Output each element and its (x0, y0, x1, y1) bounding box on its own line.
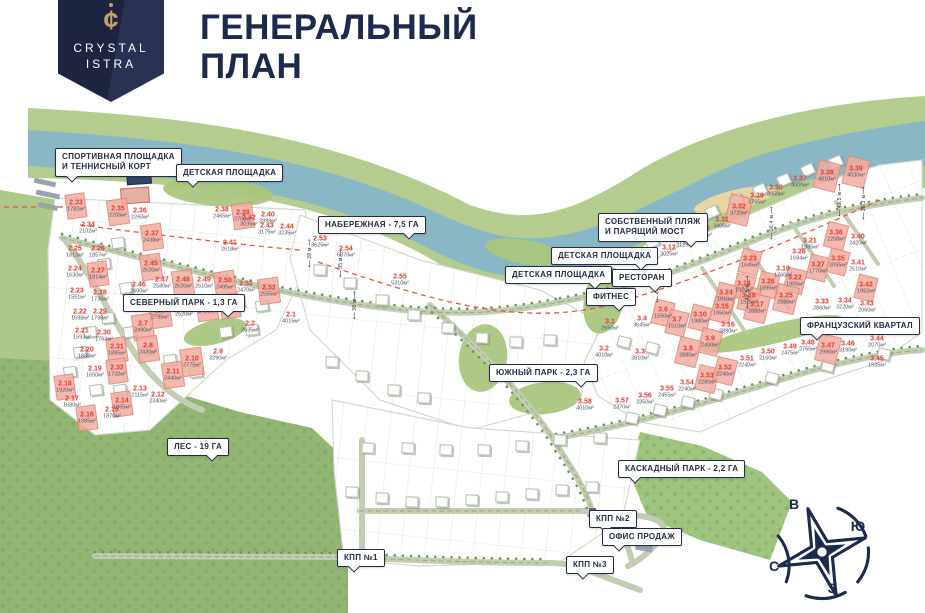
plot-area: 3765м² (748, 200, 766, 206)
plot-area: 3720м² (730, 211, 748, 217)
plot-2.33[interactable]: 2.331782м² (67, 199, 85, 212)
plot-area: 1985м² (78, 419, 96, 425)
master-plan-page: 28 м35 м38 м44,9 м42,5 м36,4 м43,5 м39,3… (0, 0, 925, 613)
plot-area: 2475м² (781, 351, 799, 357)
house-icon (593, 432, 606, 443)
plot-area: 2205м² (109, 213, 127, 219)
plot-3.52[interactable]: 3.522240м² (716, 364, 734, 377)
plot-area: 6370м² (337, 253, 355, 259)
plot-3.28[interactable]: 3.281684м² (790, 248, 808, 261)
plot-area: 2430м² (139, 350, 157, 356)
house-icon (441, 322, 454, 333)
plot-3.23[interactable]: 3.231645м² (741, 255, 759, 268)
house-icon (543, 334, 556, 345)
plot-2.34[interactable]: 2.342102м² (79, 221, 97, 234)
plot-area: 1770м² (809, 269, 827, 275)
plot-area: 1630м² (66, 273, 84, 279)
plot-area: 1736м² (91, 297, 109, 303)
plot-area: 3190м² (839, 348, 857, 354)
plot-area: 2618м² (221, 247, 239, 253)
plot-3.40[interactable]: 3.402420м² (849, 233, 867, 246)
plot-2.20[interactable]: 2.201688м² (78, 346, 96, 359)
plot-2.55[interactable]: 2.555310м² (391, 273, 409, 286)
house-icon (435, 496, 448, 507)
plot-3.26[interactable]: 3.261895м² (759, 278, 777, 291)
plot-2.16[interactable]: 2.161985м² (78, 411, 96, 424)
plot-3.10[interactable]: 3.101980м² (691, 311, 709, 324)
plot-area: 2490м² (134, 328, 152, 334)
house-icon (495, 491, 508, 502)
plot-3.17[interactable]: 3.172888м² (748, 301, 766, 314)
plot-area: 3235м² (278, 231, 296, 237)
plot-3.48[interactable]: 3.482765м² (799, 339, 817, 352)
plot-3.56[interactable]: 3.562350м² (636, 392, 654, 405)
plot-2.53[interactable]: 2.533625м² (311, 235, 329, 248)
plot-area: 1510м² (668, 324, 686, 330)
callout-ресторан: РЕСТОРАН (612, 269, 672, 287)
plot-2.25[interactable]: 2.251613м² (66, 245, 84, 258)
plot-2.23[interactable]: 2.231551м² (68, 287, 86, 300)
house-icon (509, 336, 522, 347)
callout-кпп: КПП №2 (589, 510, 637, 528)
plot-area: 2370м² (613, 405, 631, 411)
plot-area: 3175м² (258, 230, 276, 236)
plot-2.47[interactable]: 2.472580м² (153, 276, 171, 289)
plot-2.50[interactable]: 2.502495м² (216, 277, 234, 290)
plot-area: 4010м² (818, 177, 836, 183)
house-icon (465, 494, 478, 505)
plot-area: 2990м² (819, 350, 837, 356)
plot-area: 2240м² (678, 387, 696, 393)
plot-area: 1980м² (691, 319, 709, 325)
plot-2.32[interactable]: 2.321732м² (108, 364, 126, 377)
plot-area: 2208м² (827, 237, 845, 243)
house-icon (475, 332, 488, 343)
plot-area: 1950м² (713, 311, 731, 317)
plot-2.7[interactable]: 2.72490м² (134, 320, 152, 333)
plot-2.44[interactable]: 2.443235м² (278, 223, 296, 236)
plot-area: 1551м² (68, 295, 86, 301)
plot-area: 1684м² (790, 256, 808, 262)
plot-area: 2280м² (698, 380, 716, 386)
plot-3.9[interactable]: 3.92400м² (701, 335, 719, 348)
plot-3.27[interactable]: 3.271770м² (809, 261, 827, 274)
plot-3.42[interactable]: 3.421952м² (857, 281, 875, 294)
plot-3.34[interactable]: 3.343220м² (836, 297, 854, 310)
plot-area: 2888м² (748, 309, 766, 315)
callout-фитнес: ФИТНЕС (586, 288, 636, 306)
plot-area: 2520м² (142, 268, 160, 274)
house-icon (525, 488, 538, 499)
dimension-label: 38 м (352, 291, 358, 320)
plot-2.52[interactable]: 2.522555м² (260, 284, 278, 297)
plot-3.47[interactable]: 3.472990м² (819, 342, 837, 355)
plot-2.9[interactable]: 2.93290м² (209, 348, 227, 361)
dimension-label: 39,3 м (861, 186, 867, 219)
plot-area: 5310м² (391, 281, 409, 287)
plot-area: 2880м² (719, 329, 737, 335)
plot-area: 1798м² (91, 316, 109, 322)
plot-area: 2765м² (799, 347, 817, 353)
plot-3.41[interactable]: 3.412510м² (849, 259, 867, 272)
plot-2.28[interactable]: 2.281736м² (91, 289, 109, 302)
plot-area: 2775м² (183, 363, 201, 369)
plot-2.51[interactable]: 2.512470м² (237, 280, 255, 293)
house-icon (417, 392, 430, 403)
plot-area: 1885м² (108, 351, 126, 357)
plot-2.43[interactable]: 2.433175м² (258, 222, 276, 235)
plot-area: 3645м² (633, 323, 651, 329)
plot-area: 2260м² (131, 215, 149, 221)
house-icon (407, 309, 420, 320)
plot-3.2[interactable]: 3.24010м² (595, 345, 613, 358)
plot-area: 2635м² (241, 328, 259, 334)
plot-3.8[interactable]: 3.82880м² (679, 345, 697, 358)
plot-3.1[interactable]: 3.12650м² (601, 318, 619, 331)
house-icon (375, 294, 388, 305)
house-icon (401, 442, 414, 453)
plot-3.58[interactable]: 3.584010м² (576, 398, 594, 411)
plot-area: 1920м² (56, 388, 74, 394)
plot-2.27[interactable]: 2.271914м² (89, 267, 107, 280)
plot-3.43[interactable]: 3.432060м² (858, 300, 876, 313)
plot-area: 1610м² (717, 297, 735, 303)
plot-area: 3850м² (767, 192, 785, 198)
plot-2.22[interactable]: 2.221698м² (71, 308, 89, 321)
plot-2.31[interactable]: 2.311885м² (108, 343, 126, 356)
plot-3.39[interactable]: 3.394030м² (847, 165, 865, 178)
plot-3.37[interactable]: 3.374000м² (791, 175, 809, 188)
house-icon (219, 326, 233, 339)
plot-area: 3810м² (631, 356, 649, 362)
plot-3.51[interactable]: 3.512240м² (738, 355, 756, 368)
plot-2.18[interactable]: 2.181920м² (56, 380, 74, 393)
plot-area: 2420м² (849, 241, 867, 247)
plot-area: 2440м² (164, 376, 182, 382)
plot-2.17[interactable]: 2.171680м² (63, 395, 81, 408)
plot-area: 1857м² (89, 253, 107, 259)
plot-area: 4015м² (282, 319, 300, 325)
dimension-label: 36,4 м (769, 206, 775, 239)
plot-area: 2438м² (143, 238, 161, 244)
plot-area: 4030м² (847, 173, 865, 179)
callout-детская: ДЕТСКАЯ ПЛОЩАДКА (176, 164, 283, 182)
plot-area: 2055м² (829, 263, 847, 269)
plot-3.22[interactable]: 3.221905м² (786, 274, 804, 287)
plot-area: 2795м² (151, 315, 169, 321)
plot-area: 1613м² (66, 253, 84, 259)
house-icon (585, 481, 598, 492)
callout-детская: ДЕТСКАЯ ПЛОЩАДКА (505, 266, 612, 284)
plot-area: 2115м² (131, 393, 148, 399)
plot-3.16[interactable]: 3.162880м² (719, 321, 737, 334)
plot-area: 2860м² (813, 306, 831, 312)
plot-2.8[interactable]: 2.82430м² (139, 342, 157, 355)
brand-line1: CRYSTAL (58, 40, 164, 56)
plot-2.29[interactable]: 2.291798м² (91, 308, 109, 321)
house-icon (553, 434, 566, 445)
plot-area: 3035м² (240, 222, 258, 228)
plot-2.21[interactable]: 2.211593м² (73, 327, 91, 340)
house-icon (477, 444, 490, 455)
plot-2.45[interactable]: 2.452520м² (142, 260, 160, 273)
plot-2.42[interactable]: 2.423035м² (240, 214, 258, 227)
plot-area: 4000м² (791, 183, 809, 189)
plot-3.31[interactable]: 3.313405м² (713, 216, 731, 229)
brand-line2: ISTRA (58, 56, 164, 72)
plot-area: 1914м² (89, 275, 107, 281)
plot-2.24[interactable]: 2.241630м² (66, 265, 84, 278)
dimension-label: 43,5 м (837, 183, 843, 216)
plot-2.26[interactable]: 2.261857м² (89, 245, 107, 258)
plot-area: 1952м² (857, 289, 875, 295)
plot-3.45[interactable]: 3.451935м² (868, 355, 886, 368)
house-icon (345, 486, 358, 497)
plot-2.46[interactable]: 2.462600м² (130, 281, 148, 294)
house-icon (555, 484, 568, 495)
plot-area: 2580м² (153, 284, 171, 290)
plot-3.36[interactable]: 3.362208м² (827, 229, 845, 242)
plot-area: 2400м² (701, 343, 719, 349)
plot-area: 2510м² (195, 284, 213, 290)
plot-3.50[interactable]: 3.502160м² (759, 348, 777, 361)
callout-каскадный: КАСКАДНЫЙ ПАРК - 2,2 ГА (618, 460, 745, 478)
plot-3.38[interactable]: 3.384010м² (818, 169, 836, 182)
house-icon (375, 492, 388, 503)
callout-северный: СЕВЕРНЫЙ ПАРК - 1,3 ГА (123, 294, 245, 312)
plot-area: 2510м² (849, 267, 867, 273)
plot-2.49[interactable]: 2.492510м² (195, 276, 213, 289)
plot-3.49[interactable]: 3.492475м² (781, 343, 799, 356)
crystal-istra-logo-icon: ¢ (58, 0, 164, 40)
plot-area: 1645м² (741, 263, 759, 269)
plot-area: 1688м² (78, 354, 96, 360)
plot-area: 3405м² (713, 224, 731, 230)
plot-3.25[interactable]: 3.252888м² (777, 292, 795, 305)
plot-2.12[interactable]: 2.122340м² (149, 391, 167, 404)
plot-area: 2465м² (213, 214, 231, 220)
plot-2.1[interactable]: 2.14015м² (282, 311, 300, 324)
plot-area: 2470м² (237, 288, 255, 294)
plot-3.3[interactable]: 3.33810м² (631, 348, 649, 361)
plot-area: 2240м² (738, 363, 756, 369)
plot-area: 1593м² (73, 335, 91, 341)
plot-area: 2350м² (636, 400, 654, 406)
plot-3.44[interactable]: 3.442070м² (868, 335, 886, 348)
callout-набережная: НАБЕРЕЖНАЯ - 7,5 ГА (318, 216, 426, 234)
plot-area: 2520м² (174, 284, 192, 290)
plot-area: 1680м² (63, 403, 81, 409)
plot-2.30[interactable]: 2.301763м² (95, 329, 113, 342)
plot-area: 1763м² (95, 337, 113, 343)
plot-area: 4010м² (576, 406, 594, 412)
plot-3.54[interactable]: 3.542240м² (678, 379, 696, 392)
house-icon (111, 237, 125, 250)
house-icon (515, 440, 528, 451)
plot-area: 1782м² (67, 207, 85, 213)
plot-2.19[interactable]: 2.191650м² (86, 365, 104, 378)
plot-area: 3290м² (209, 356, 227, 362)
plot-area: 2880м² (679, 353, 697, 359)
plot-3.33[interactable]: 3.332860м² (813, 298, 831, 311)
house-icon (439, 444, 452, 455)
plot-area: 2160м² (759, 356, 777, 362)
house-icon (405, 496, 418, 507)
plot-2.35[interactable]: 2.352205м² (109, 205, 127, 218)
house-icon (89, 384, 103, 397)
plot-area: 2555м² (260, 292, 278, 298)
plot-area: 2060м² (858, 308, 876, 314)
plot-area: 2520м² (175, 312, 193, 318)
plot-area: 3625м² (311, 243, 329, 249)
plot-area: 1650м² (86, 373, 104, 379)
compass-rose (762, 492, 882, 612)
plot-area: 1732м² (108, 372, 126, 378)
plot-area: 4010м² (595, 353, 613, 359)
plot-3.7[interactable]: 3.71510м² (668, 316, 686, 329)
plot-3.24[interactable]: 3.241610м² (717, 289, 735, 302)
plot-area: 2650м² (601, 326, 619, 332)
plot-2.11[interactable]: 2.112440м² (164, 368, 182, 381)
plot-2.37[interactable]: 2.372438м² (143, 230, 161, 243)
plot-2.14[interactable]: 2.141865м² (113, 397, 131, 410)
plot-3.30[interactable]: 3.303850м² (767, 184, 785, 197)
house-icon (355, 370, 368, 381)
callout-кпп: КПП №3 (566, 556, 614, 574)
plot-area: 1895м² (759, 286, 777, 292)
plot-area: 2240м² (716, 372, 734, 378)
plot-2.41[interactable]: 2.412618м² (221, 239, 239, 252)
plot-2.2[interactable]: 2.22635м² (241, 320, 259, 333)
callout-спортивная: СПОРТИВНАЯ ПЛОЩАДКА И ТЕННИСНЫЙ КОРТ (55, 148, 182, 177)
plot-2.54[interactable]: 2.546370м² (337, 245, 355, 258)
plot-2.13[interactable]: 2.132115м² (131, 385, 148, 398)
plot-area: 2102м² (79, 229, 97, 235)
plot-area: 3025м² (660, 252, 678, 258)
plot-area: 1865м² (113, 405, 131, 411)
callout-собственный: СОБСТВЕННЫЙ ПЛЯЖ И ПАРЯЩИЙ МОСТ (598, 213, 708, 242)
plot-2.48[interactable]: 2.482520м² (174, 276, 192, 289)
plot-3.57[interactable]: 3.572370м² (613, 397, 631, 410)
plot-3.55[interactable]: 3.552455м² (658, 385, 676, 398)
plot-area: 1905м² (786, 282, 804, 288)
plot-3.35[interactable]: 3.352055м² (829, 255, 847, 268)
plot-3.53[interactable]: 3.532280м² (698, 372, 716, 385)
plot-3.32[interactable]: 3.323720м² (730, 203, 748, 216)
house-icon (361, 442, 374, 453)
page-title: ГЕНЕРАЛЬНЫЙ ПЛАН (200, 8, 478, 86)
plot-3.29[interactable]: 3.293765м² (748, 192, 766, 205)
house-icon (313, 264, 326, 275)
plot-area: 1935м² (868, 363, 886, 369)
plot-area: 2455м² (658, 393, 676, 399)
plot-area: 2495м² (216, 285, 234, 291)
plot-2.38[interactable]: 2.382465м² (213, 206, 231, 219)
plot-3.46[interactable]: 3.463190м² (839, 340, 857, 353)
callout-офис: ОФИС ПРОДАЖ (602, 528, 682, 546)
callout-лес: ЛЕС - 19 ГА (167, 438, 229, 456)
callout-детская: ДЕТСКАЯ ПЛОЩАДКА (551, 247, 658, 265)
callout-кпп: КПП №1 (337, 549, 385, 567)
plot-area: 3220м² (836, 305, 854, 311)
callout-южный: ЮЖНЫЙ ПАРК - 2,3 ГА (489, 364, 598, 382)
plot-area: 2340м² (149, 399, 167, 405)
house-icon (325, 356, 338, 367)
plot-area: 2888м² (777, 300, 795, 306)
plot-3.4[interactable]: 3.43645м² (633, 315, 651, 328)
plot-3.15[interactable]: 3.151950м² (713, 303, 731, 316)
plot-area: 2070м² (868, 343, 886, 349)
plot-area: 1870м² (103, 414, 121, 420)
plot-2.36[interactable]: 2.362260м² (131, 207, 149, 220)
plot-area: 1698м² (71, 316, 89, 322)
house-icon (343, 277, 356, 288)
house-icon (387, 384, 400, 395)
plot-2.10[interactable]: 2.102775м² (183, 355, 201, 368)
callout-французский: ФРАНЦУЗСКИЙ КВАРТАЛ (800, 317, 920, 335)
